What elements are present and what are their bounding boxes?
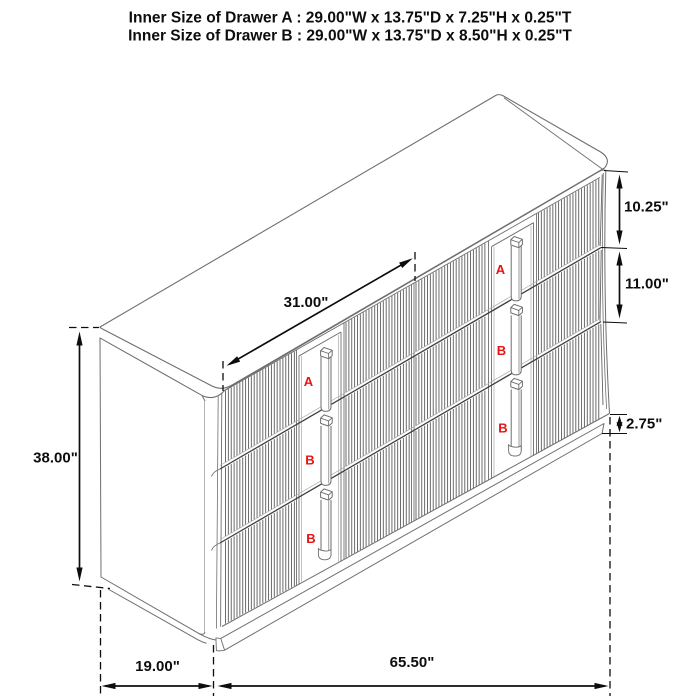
svg-text:31.00": 31.00" <box>284 294 329 311</box>
svg-text:65.50": 65.50" <box>390 654 435 671</box>
svg-text:2.75": 2.75" <box>626 416 662 433</box>
svg-text:38.00": 38.00" <box>33 450 78 467</box>
svg-text:B: B <box>498 421 507 436</box>
svg-text:10.25": 10.25" <box>624 199 669 216</box>
svg-text:B: B <box>306 531 315 546</box>
svg-text:11.00": 11.00" <box>625 276 669 293</box>
svg-text:B: B <box>305 453 314 468</box>
svg-text:A: A <box>304 374 314 389</box>
svg-text:19.00": 19.00" <box>135 658 180 675</box>
svg-text:Inner Size of Drawer A : 29.00: Inner Size of Drawer A : 29.00"W x 13.75… <box>129 10 572 27</box>
svg-text:A: A <box>496 262 506 277</box>
svg-text:Inner Size of Drawer B : 29.00: Inner Size of Drawer B : 29.00"W x 13.75… <box>128 28 572 45</box>
svg-text:B: B <box>497 343 506 358</box>
